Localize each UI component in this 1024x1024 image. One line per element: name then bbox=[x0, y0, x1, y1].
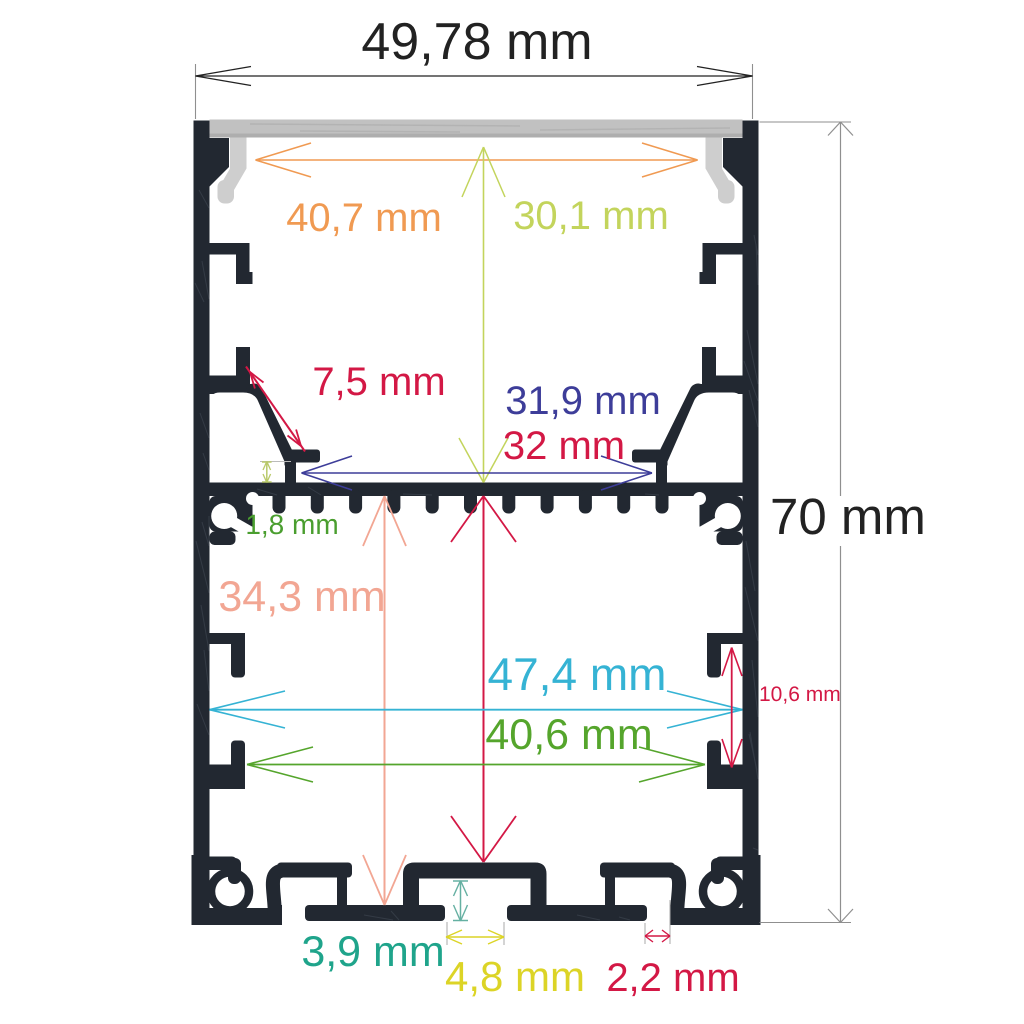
svg-text:40,6 mm: 40,6 mm bbox=[485, 711, 652, 759]
svg-text:40,7 mm: 40,7 mm bbox=[286, 196, 442, 240]
svg-text:7,5 mm: 7,5 mm bbox=[312, 360, 445, 404]
svg-text:2,2 mm: 2,2 mm bbox=[606, 956, 739, 1000]
svg-text:32 mm: 32 mm bbox=[503, 424, 625, 468]
svg-text:70 mm: 70 mm bbox=[770, 488, 926, 545]
svg-text:10,6 mm: 10,6 mm bbox=[759, 683, 841, 706]
svg-text:34,3 mm: 34,3 mm bbox=[218, 573, 385, 621]
svg-text:3,9 mm: 3,9 mm bbox=[301, 928, 444, 976]
svg-text:30,1 mm: 30,1 mm bbox=[513, 194, 669, 238]
svg-text:4,8 mm: 4,8 mm bbox=[445, 953, 585, 1000]
svg-text:47,4 mm: 47,4 mm bbox=[488, 648, 667, 700]
svg-text:49,78 mm: 49,78 mm bbox=[361, 13, 592, 71]
svg-text:1,8 mm: 1,8 mm bbox=[245, 509, 338, 540]
svg-text:31,9 mm: 31,9 mm bbox=[505, 379, 661, 423]
